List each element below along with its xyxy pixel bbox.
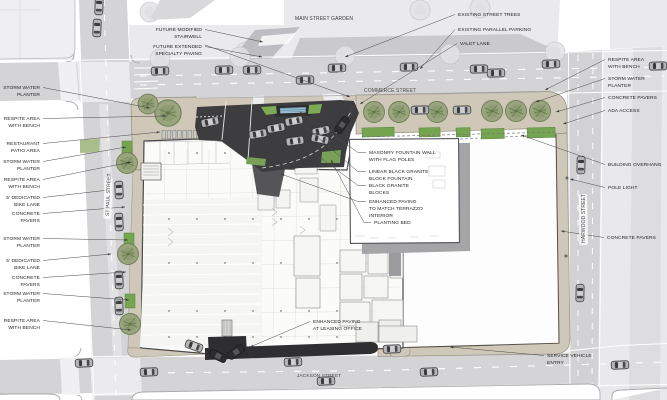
svg-text:STAIRWELL: STAIRWELL <box>174 34 202 40</box>
svg-text:FUTURE EXTENDED: FUTURE EXTENDED <box>153 44 202 50</box>
svg-text:STORM WATER: STORM WATER <box>608 76 645 82</box>
svg-text:PLANTER: PLANTER <box>17 243 40 249</box>
svg-text:BLOCK FOUNTAIN: BLOCK FOUNTAIN <box>369 176 413 182</box>
svg-text:RESPITE AREA: RESPITE AREA <box>4 318 41 324</box>
svg-text:EXISTING STREET TREES: EXISTING STREET TREES <box>458 12 521 18</box>
svg-text:ENHANCED PAVING: ENHANCED PAVING <box>313 319 361 325</box>
svg-text:WITH BENCH: WITH BENCH <box>8 184 40 190</box>
svg-text:MASONRY FOUNTAIN WALL: MASONRY FOUNTAIN WALL <box>369 150 436 156</box>
svg-text:PAVERS: PAVERS <box>20 282 40 288</box>
svg-text:CONCRETE PAVERS: CONCRETE PAVERS <box>608 95 658 101</box>
svg-text:STORM WATER: STORM WATER <box>3 85 40 91</box>
svg-text:PLANTER: PLANTER <box>17 166 40 172</box>
svg-text:PLANTING BED: PLANTING BED <box>374 220 411 226</box>
svg-text:WITH BENCH: WITH BENCH <box>608 64 640 70</box>
svg-text:BLOCKS: BLOCKS <box>369 190 390 196</box>
svg-text:STORM WATER: STORM WATER <box>3 159 40 165</box>
svg-text:STORM WATER: STORM WATER <box>3 291 40 297</box>
svg-text:ENTRY: ENTRY <box>547 360 564 366</box>
svg-text:FUTURE MODIFIED: FUTURE MODIFIED <box>156 27 203 33</box>
svg-text:VALET LANE: VALET LANE <box>460 41 491 47</box>
svg-text:MAIN STREET GARDEN: MAIN STREET GARDEN <box>295 16 353 22</box>
svg-text:PLANTER: PLANTER <box>17 92 40 98</box>
svg-text:WITH FLAG POLES: WITH FLAG POLES <box>369 157 415 163</box>
svg-text:5' DEDICATED: 5' DEDICATED <box>6 258 40 264</box>
svg-text:PLANTER: PLANTER <box>608 83 631 89</box>
svg-text:RESPITE AREA: RESPITE AREA <box>4 177 41 183</box>
svg-text:RESPITE AREA: RESPITE AREA <box>608 57 645 63</box>
svg-text:LINEAR BLACK GRANITE: LINEAR BLACK GRANITE <box>369 169 429 175</box>
svg-text:STORM WATER: STORM WATER <box>3 236 40 242</box>
svg-text:COMMERCE STREET: COMMERCE STREET <box>364 88 416 94</box>
svg-text:BIKE LANE: BIKE LANE <box>14 202 41 208</box>
svg-text:POLE LIGHT: POLE LIGHT <box>608 185 638 191</box>
svg-text:ENHANCED PAVING: ENHANCED PAVING <box>369 199 417 205</box>
svg-text:TO MATCH TERRAZZO: TO MATCH TERRAZZO <box>369 206 423 212</box>
svg-text:CONCRETE PAVERS: CONCRETE PAVERS <box>607 235 657 241</box>
svg-text:CONCRETE: CONCRETE <box>12 211 41 217</box>
svg-text:PAVERS: PAVERS <box>20 218 40 224</box>
svg-text:RESTAURANT: RESTAURANT <box>7 141 40 147</box>
svg-text:BLACK GRANITE: BLACK GRANITE <box>369 183 410 189</box>
svg-text:BIKE LANE: BIKE LANE <box>14 265 41 271</box>
svg-text:ADA ACCESS: ADA ACCESS <box>608 108 640 114</box>
svg-text:5' DEDICATED: 5' DEDICATED <box>6 195 40 201</box>
svg-text:CONCRETE: CONCRETE <box>12 275 41 281</box>
svg-text:HARWOOD STREET: HARWOOD STREET <box>581 194 587 243</box>
svg-text:SERVICE VEHICLE: SERVICE VEHICLE <box>547 353 592 359</box>
svg-text:WITH BENCH: WITH BENCH <box>8 123 40 129</box>
svg-text:PATIO AREA: PATIO AREA <box>11 148 41 154</box>
svg-text:PLANTER: PLANTER <box>17 298 40 304</box>
svg-text:SPECIALTY PAVING: SPECIALTY PAVING <box>155 51 202 57</box>
svg-text:AT LEASING OFFICE: AT LEASING OFFICE <box>313 326 363 332</box>
svg-text:JACKSON STREET: JACKSON STREET <box>297 373 341 379</box>
svg-text:WITH BENCH: WITH BENCH <box>8 325 40 331</box>
svg-text:EXISTING PARALLEL PARKING: EXISTING PARALLEL PARKING <box>458 27 531 33</box>
svg-text:INTERIOR: INTERIOR <box>369 213 393 219</box>
svg-text:BUILDING OVERHANG: BUILDING OVERHANG <box>608 162 662 168</box>
svg-text:RESPITE AREA: RESPITE AREA <box>4 116 41 122</box>
